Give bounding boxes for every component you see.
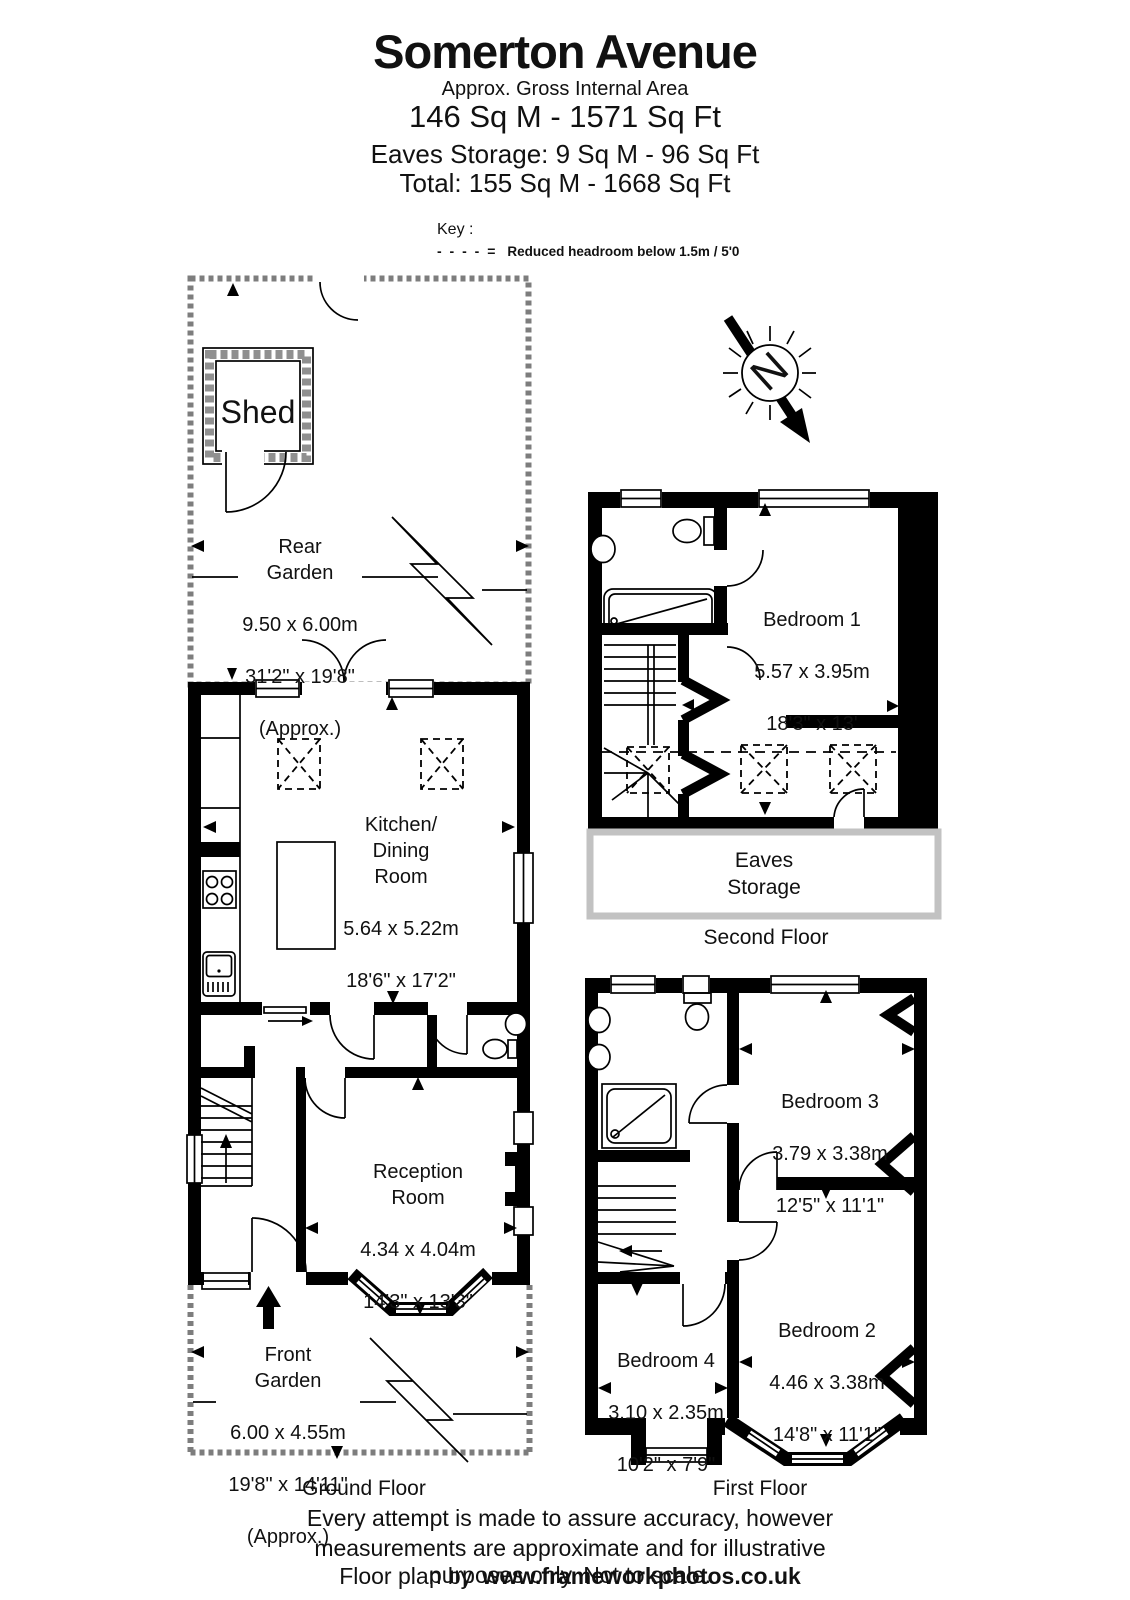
rear-garden-fence — [191, 279, 529, 685]
room-name: Bedroom 1 — [754, 607, 870, 633]
room-dim-metric: 6.00 x 4.55m — [228, 1420, 347, 1446]
room-name: Bedroom 3 — [772, 1089, 888, 1115]
hall-door — [330, 1015, 374, 1059]
bathroom1-door — [689, 1085, 727, 1123]
bedroom2-label: Bedroom 2 4.46 x 3.38m 14'8" x 11'1" — [769, 1292, 885, 1474]
room-dim-metric: 5.64 x 5.22m — [343, 916, 459, 942]
eaves-storage-label: Eaves Storage — [727, 847, 801, 901]
room-name: Rear Garden — [242, 534, 358, 586]
bathroom1-basin-icon — [588, 1008, 610, 1033]
credit-url: www.frameworkphotos.co.uk — [482, 1563, 801, 1590]
reception-door — [305, 1078, 345, 1118]
bathroom2-basin-icon — [591, 536, 615, 563]
room-approx: (Approx.) — [242, 716, 358, 742]
bedroom4-label: Bedroom 4 3.10 x 2.35m 10'2" x 7'9" — [608, 1322, 724, 1504]
room-dim-imperial: 10'2" x 7'9" — [608, 1452, 724, 1478]
key-description: Reduced headroom below 1.5m / 5'0 — [507, 244, 739, 259]
kitchen-label: Kitchen/ Dining Room 5.64 x 5.22m 18'6" … — [343, 786, 459, 1020]
room-dim-metric: 3.10 x 2.35m — [608, 1400, 724, 1426]
room-dim-imperial: 14'8" x 11'1" — [769, 1422, 885, 1448]
ground-floor-label: Ground Floor — [302, 1477, 426, 1501]
shower-icon — [602, 1084, 676, 1148]
room-name: Reception Room — [360, 1159, 476, 1211]
room-dim-imperial: 14'3" x 13'3" — [360, 1289, 476, 1315]
room-name: Bedroom 4 — [608, 1348, 724, 1374]
room-dim-metric: 3.79 x 3.38m — [772, 1141, 888, 1167]
key-legend: Key : - - - - = Reduced headroom below 1… — [437, 221, 739, 259]
room-name: Front Garden — [228, 1342, 347, 1394]
wc-toilet-icon — [508, 1040, 517, 1058]
room-dim-imperial: 12'5" x 11'1" — [772, 1193, 888, 1219]
ground-stairs — [201, 1078, 252, 1186]
floorplan-page: Somerton Avenue Approx. Gross Internal A… — [0, 0, 1130, 1600]
key-title: Key : — [437, 221, 739, 239]
room-dim-metric: 9.50 x 6.00m — [242, 612, 358, 638]
bathroom1-toilet-icon — [684, 993, 711, 1003]
bathroom1-basin2-icon — [588, 1045, 610, 1070]
reception-label: Reception Room 4.34 x 4.04m 14'3" x 13'3… — [360, 1133, 476, 1341]
bedroom4-door — [683, 1284, 725, 1326]
rear-garden-label: Rear Garden 9.50 x 6.00m 31'2" x 19'8" (… — [242, 508, 358, 768]
disclaimer-line1: Every attempt is made to assure accuracy… — [307, 1505, 833, 1532]
page-title: Somerton Avenue — [373, 24, 757, 79]
room-name: Bedroom 2 — [769, 1318, 885, 1344]
room-dim-metric: 4.34 x 4.04m — [360, 1237, 476, 1263]
second-floor-label: Second Floor — [704, 926, 829, 950]
kitchen-island — [277, 842, 335, 949]
key-dashed-symbol: - - - - = — [437, 243, 497, 259]
credit-prefix: Floor plan by — [339, 1563, 472, 1590]
wc-basin-icon — [506, 1013, 527, 1035]
front-garden-break-line — [370, 1338, 468, 1462]
hob-icon — [203, 871, 236, 908]
area-total: Total: 155 Sq M - 1668 Sq Ft — [400, 168, 731, 199]
area-eaves: Eaves Storage: 9 Sq M - 96 Sq Ft — [371, 139, 760, 170]
subtitle: Approx. Gross Internal Area — [442, 78, 689, 101]
rear-garden-break-line — [392, 517, 492, 645]
room-dim-metric: 4.46 x 3.38m — [769, 1370, 885, 1396]
bathroom2-toilet-icon — [704, 517, 714, 545]
bedroom3-label: Bedroom 3 3.79 x 3.38m 12'5" x 11'1" — [772, 1063, 888, 1245]
credit-line: Floor plan by www.frameworkphotos.co.uk — [339, 1563, 801, 1590]
sink-icon — [203, 952, 235, 996]
first-floor-label: First Floor — [713, 1477, 808, 1501]
shed-label: Shed — [221, 394, 296, 431]
room-dim-imperial: 18'6" x 17'2" — [343, 968, 459, 994]
room-name: Kitchen/ Dining Room — [343, 812, 459, 890]
room-dim-metric: 5.57 x 3.95m — [754, 659, 870, 685]
room-dim-imperial: 18'3" x 13' — [754, 711, 870, 737]
bedroom1-label: Bedroom 1 5.57 x 3.95m 18'3" x 13' — [754, 581, 870, 763]
room-dim-imperial: 31'2" x 19'8" — [242, 664, 358, 690]
area-main: 146 Sq M - 1571 Sq Ft — [409, 99, 721, 135]
first-stairs — [598, 1186, 676, 1272]
